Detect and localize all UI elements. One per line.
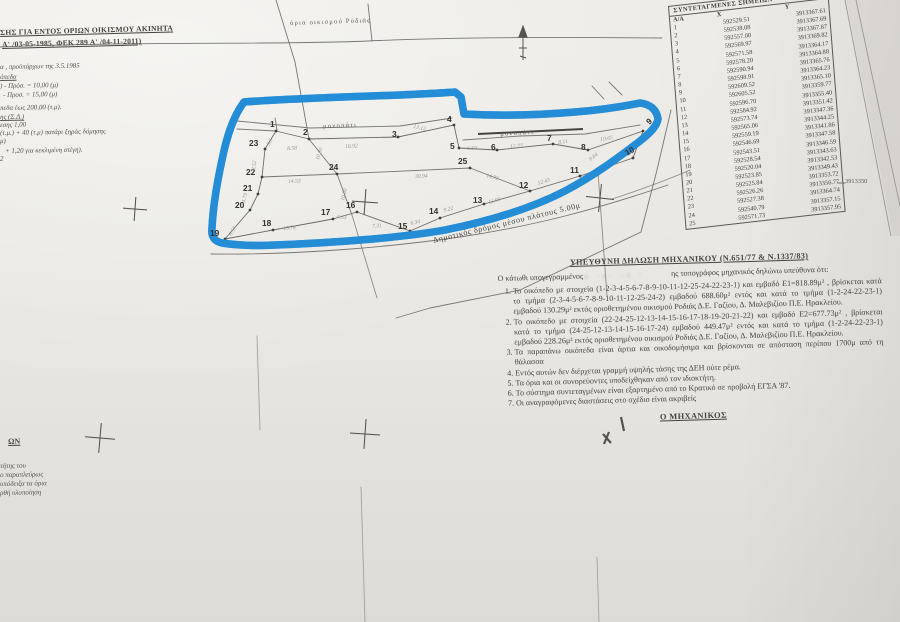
highlight-polygon-core	[212, 92, 658, 245]
point-label-16: 16	[346, 200, 355, 210]
declaration-list: Το οικόπεδο με στοιχεία (1-2-3-4-5-6-7-8…	[498, 276, 885, 409]
coordinates-table-rows: 1592529.513913367.612592538.083913367.69…	[670, 7, 844, 229]
note-line: 2	[0, 156, 3, 163]
note-line: εσης 1,00	[0, 122, 26, 129]
point-label-21: 21	[243, 183, 252, 193]
sheet-edge-shade	[846, 0, 900, 236]
registration-cross	[84, 422, 117, 455]
point-label-3: 3	[392, 129, 397, 139]
dimension-label: 15.76	[283, 225, 296, 232]
bottom-left-line: ο παραπλεύρως	[0, 470, 43, 479]
dimension-label: 30.94	[415, 174, 428, 180]
point-label-11: 11	[570, 165, 579, 175]
point-label-12: 12	[519, 180, 528, 190]
bottom-left-heading: ΩΝ	[8, 437, 20, 446]
dimension-label: 14.53	[288, 179, 301, 185]
point-label-5: 5	[450, 141, 455, 151]
point-label-13: 13	[473, 195, 482, 205]
highlight-polygon	[212, 92, 658, 245]
point-label-6: 6	[491, 142, 496, 152]
bottom-left-line: υπόδειξα τα όρια	[0, 479, 47, 488]
registration-cross	[349, 418, 381, 450]
footpath-line	[237, 129, 276, 131]
engineer-declaration: ΥΠΕΥΘΥΝΗ ΔΗΛΩΣΗ ΜΗΧΑΝΙΚΟΥ (Ν.651/77 & Ν.…	[497, 249, 885, 426]
dimension-label: 6.60	[467, 146, 477, 152]
point-label-7: 7	[547, 133, 552, 143]
hatch-marks	[592, 82, 622, 99]
registration-cross	[585, 183, 616, 214]
note-line: ης (Σ.Δ.)	[0, 114, 24, 121]
dimension-label: 8.58	[287, 145, 297, 152]
point-label-23: 23	[249, 138, 258, 148]
bottom-left-line: τήτης του	[0, 462, 26, 470]
cell-n: 25	[689, 219, 704, 229]
grid-northing-label: 3913350	[845, 178, 867, 185]
point-label-4: 4	[447, 114, 452, 124]
scanned-survey-plan: ΣΗΣ ΓΙΑ ΕΝΤΟΣ ΟΡΙΩΝ ΟΙΚΙΣΜΟΥ ΑΚΙΝΗΤΑΑ' /…	[0, 0, 900, 622]
registration-cross	[122, 196, 148, 222]
point-label-2: 2	[303, 127, 308, 137]
point-label-24: 24	[329, 162, 338, 172]
note-line: α , προϋπάρχων της 3.5.1985	[0, 63, 80, 71]
point-label-14: 14	[429, 206, 438, 216]
point-label-8: 8	[581, 142, 586, 152]
dimension-label: 8.11	[558, 139, 568, 146]
note-line: πεδα έως 200,00 (τ.μ).	[0, 104, 62, 112]
dimension-label: 4.33	[336, 214, 347, 221]
note-line: - Προσ. = 15,00 (μ)	[3, 91, 57, 99]
point-label-19: 19	[210, 228, 219, 238]
point-label-25: 25	[458, 156, 467, 166]
footpath-label: μονοπάτι	[323, 122, 357, 130]
north-arrow-icon	[519, 26, 527, 60]
redacted-name: ι ·ι· -ι ·	[585, 269, 669, 280]
point-label-17: 17	[321, 207, 330, 217]
point-tick	[275, 118, 277, 130]
point-label-15: 15	[398, 221, 407, 231]
coordinates-table: ΣΥΝΤΕΤΑΓΜΕΝΕΣ ΣΗΜΕΙΩΝ Α/Α X Y 1592529.51…	[668, 0, 846, 230]
note-line: όπεδα	[0, 74, 17, 81]
note-line: μ)	[0, 138, 6, 145]
dimension-label: 7.31	[372, 223, 382, 230]
point-label-1: 1	[270, 119, 275, 129]
dimension-label: 18.92	[345, 143, 358, 150]
note-line: ) - Πρόσ. = 10,00 (μ)	[0, 82, 58, 90]
dimension-label: 12.77	[510, 143, 523, 150]
bottom-left-line: ρθή υλοποίηση	[0, 488, 41, 497]
note-line: + 1,20 για κεκλιμένη στέγη).	[5, 147, 83, 155]
point-label-18: 18	[262, 218, 271, 228]
